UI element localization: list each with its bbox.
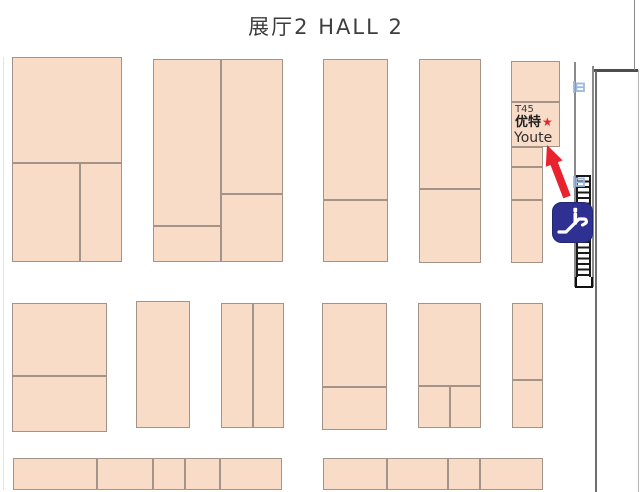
booth-cell	[323, 200, 388, 262]
booth-cell	[12, 57, 122, 163]
booth-cell	[512, 380, 543, 428]
booth-cell	[511, 167, 543, 200]
booth-cell	[253, 303, 284, 428]
booth-cell	[13, 458, 97, 490]
booth-cell	[419, 189, 481, 263]
booth-cell	[136, 301, 190, 428]
right-wall	[595, 71, 597, 492]
floorplan: 展厅2 HALL 2 T45 优特★ Youte	[0, 0, 640, 492]
booth-cell	[322, 303, 387, 387]
outer-right-wall	[638, 70, 639, 492]
booth-cell	[418, 303, 481, 386]
booth-cell	[418, 386, 450, 428]
door-icon	[572, 175, 586, 189]
booth-cell	[80, 163, 122, 262]
stairs-end-bracket	[575, 277, 593, 288]
outer-right-wall	[634, 0, 635, 70]
booth-name-en: Youte	[514, 131, 559, 145]
booth-cell	[12, 376, 107, 432]
booth-cell	[220, 458, 282, 490]
booth-cell	[153, 458, 185, 490]
left-wall-line	[3, 57, 4, 490]
booth-id: T45	[515, 105, 559, 115]
top-right-wall	[594, 69, 638, 72]
booth-cell	[323, 458, 387, 490]
booth-cell	[221, 194, 283, 262]
escalator-icon	[552, 202, 593, 243]
booth-cell	[323, 59, 388, 200]
hall-title: 展厅2 HALL 2	[0, 11, 640, 41]
booth-cell	[153, 59, 221, 226]
booth-cell	[419, 59, 481, 189]
booth-cell	[12, 163, 80, 262]
booth-cell	[12, 303, 107, 376]
booth-name-cn: 优特★	[515, 116, 559, 129]
booth-cell	[511, 61, 560, 102]
booth-cell	[97, 458, 153, 490]
booth-cell	[387, 458, 448, 490]
booth-cell	[185, 458, 220, 490]
stair-shaft-wall	[592, 66, 594, 287]
booth-cell	[511, 147, 543, 167]
booth-cell	[153, 226, 221, 262]
booth-cell	[512, 303, 543, 380]
booth-cell	[511, 200, 543, 263]
booth-cell	[221, 303, 253, 428]
booth-cell	[480, 458, 543, 490]
door-icon	[572, 80, 586, 94]
booth-cell	[221, 59, 283, 194]
booth-cell	[450, 386, 481, 428]
booth-cell	[448, 458, 480, 490]
booth-cell	[322, 387, 387, 430]
booth-t45: T45 优特★ Youte	[511, 102, 560, 147]
highlight-star-icon: ★	[542, 115, 553, 129]
